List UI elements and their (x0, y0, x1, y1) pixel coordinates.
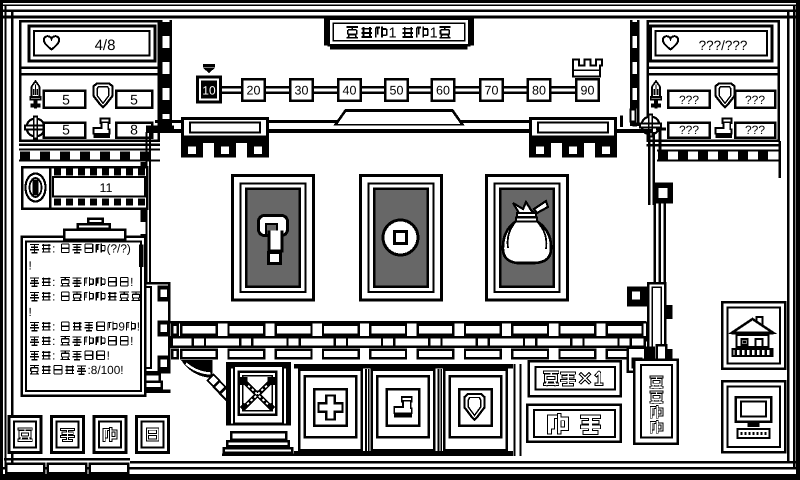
svg-text:!: ! (107, 349, 110, 363)
svg-text::8/100!: :8/100! (87, 363, 123, 377)
svg-text:???: ??? (679, 123, 699, 137)
svg-text:50: 50 (390, 83, 404, 97)
svg-text:60: 60 (436, 83, 450, 97)
svg-text:!: ! (130, 275, 133, 289)
svg-text:???: ??? (679, 93, 699, 107)
svg-text::: : (52, 242, 55, 256)
svg-text:!: ! (28, 259, 31, 273)
svg-text:20: 20 (247, 83, 261, 97)
svg-text:???/???: ???/??? (699, 38, 748, 53)
svg-text:5: 5 (62, 91, 70, 107)
svg-text::: : (52, 334, 55, 348)
svg-text:40: 40 (343, 83, 357, 97)
svg-text:80: 80 (532, 83, 546, 97)
svg-text:90: 90 (581, 83, 595, 97)
svg-text:8: 8 (130, 121, 138, 137)
svg-text:???: ??? (745, 93, 765, 107)
svg-text:10: 10 (202, 83, 216, 97)
svg-text:!: ! (28, 305, 31, 319)
svg-text:30: 30 (295, 83, 309, 97)
svg-text::: : (52, 320, 55, 334)
svg-text:???: ??? (745, 123, 765, 137)
svg-text:9: 9 (118, 320, 125, 334)
svg-text:!: ! (130, 334, 133, 348)
svg-text:4/8: 4/8 (95, 37, 116, 54)
svg-text:!: ! (137, 320, 140, 334)
svg-text:1: 1 (430, 26, 438, 42)
svg-text::: : (52, 275, 55, 289)
svg-text:(?/?): (?/?) (107, 242, 131, 256)
svg-text:11: 11 (100, 181, 113, 195)
svg-text:1: 1 (388, 26, 396, 42)
svg-text:70: 70 (485, 83, 499, 97)
svg-text:5: 5 (130, 91, 138, 107)
svg-text::: : (52, 290, 55, 304)
svg-text:5: 5 (62, 121, 70, 137)
svg-text::: : (52, 349, 55, 363)
